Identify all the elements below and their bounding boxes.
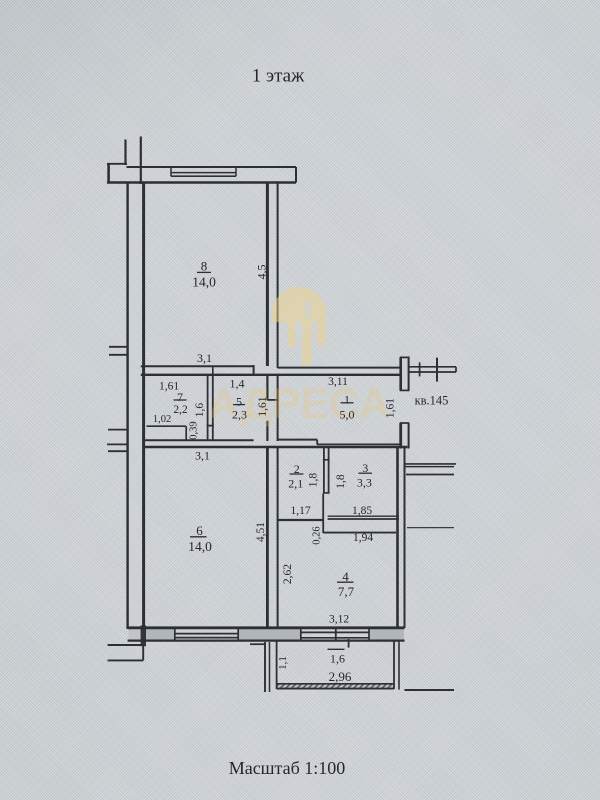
svg-text:0,26: 0,26 — [312, 526, 323, 544]
svg-text:1,85: 1,85 — [352, 505, 372, 517]
svg-text:7,7: 7,7 — [338, 584, 355, 599]
svg-text:4,5: 4,5 — [255, 265, 269, 280]
svg-text:1,61: 1,61 — [257, 396, 269, 416]
svg-text:1 этаж: 1 этаж — [252, 65, 305, 86]
svg-text:5: 5 — [236, 395, 242, 409]
svg-text:3,3: 3,3 — [357, 476, 372, 490]
svg-text:0,39: 0,39 — [188, 421, 199, 439]
svg-text:3: 3 — [362, 461, 368, 475]
svg-text:6: 6 — [196, 523, 203, 538]
svg-text:14,0: 14,0 — [188, 539, 212, 554]
svg-text:1: 1 — [344, 393, 350, 407]
svg-text:1,94: 1,94 — [353, 532, 373, 544]
svg-text:1,17: 1,17 — [290, 505, 310, 517]
svg-text:1,8: 1,8 — [335, 474, 347, 489]
svg-text:4: 4 — [342, 569, 349, 584]
svg-text:14,0: 14,0 — [192, 275, 216, 290]
svg-text:3,11: 3,11 — [328, 376, 348, 388]
svg-text:2,1: 2,1 — [288, 477, 303, 491]
svg-text:2: 2 — [294, 462, 300, 476]
svg-text:3,12: 3,12 — [329, 613, 349, 625]
svg-text:7: 7 — [177, 390, 183, 404]
svg-text:2,62: 2,62 — [282, 564, 294, 584]
svg-text:2,96: 2,96 — [329, 669, 352, 684]
svg-text:1,6: 1,6 — [330, 652, 345, 666]
svg-text:кв.145: кв.145 — [415, 393, 449, 407]
svg-text:1,02: 1,02 — [153, 414, 171, 425]
svg-text:4,51: 4,51 — [255, 522, 267, 542]
svg-text:8: 8 — [201, 258, 208, 273]
svg-text:1,1: 1,1 — [277, 656, 289, 670]
svg-text:1,6: 1,6 — [194, 403, 206, 418]
svg-text:5,0: 5,0 — [340, 408, 355, 422]
svg-text:1,8: 1,8 — [308, 473, 320, 488]
svg-text:2,3: 2,3 — [232, 408, 247, 422]
svg-text:2,2: 2,2 — [173, 404, 188, 416]
svg-text:3,1: 3,1 — [195, 449, 210, 463]
svg-text:1,61: 1,61 — [384, 398, 396, 418]
svg-text:3,1: 3,1 — [197, 351, 212, 365]
svg-text:Масштаб 1:100: Масштаб 1:100 — [229, 758, 346, 778]
svg-text:1,4: 1,4 — [230, 377, 245, 391]
